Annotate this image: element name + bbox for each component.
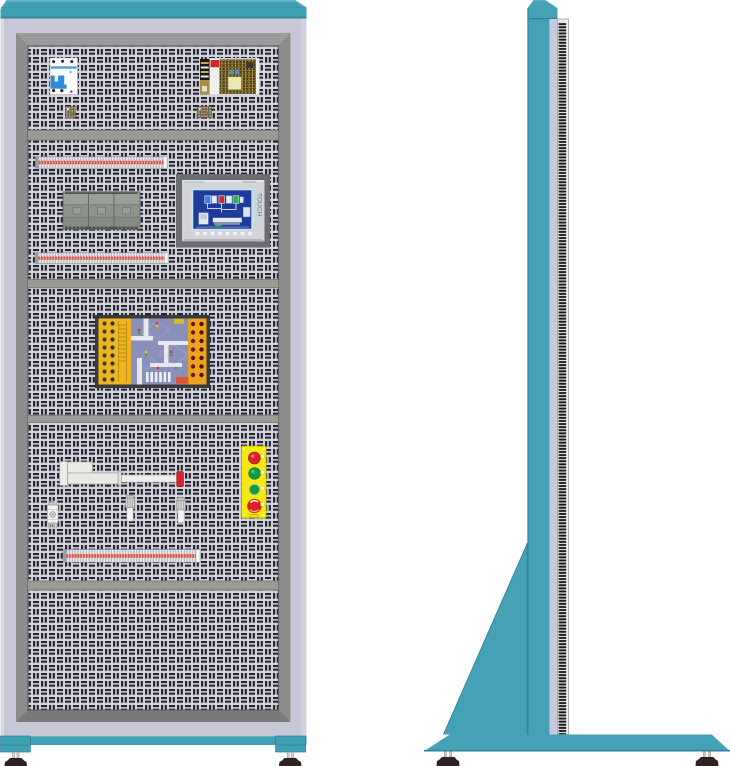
svg-text:TOUCH: TOUCH bbox=[256, 193, 263, 217]
